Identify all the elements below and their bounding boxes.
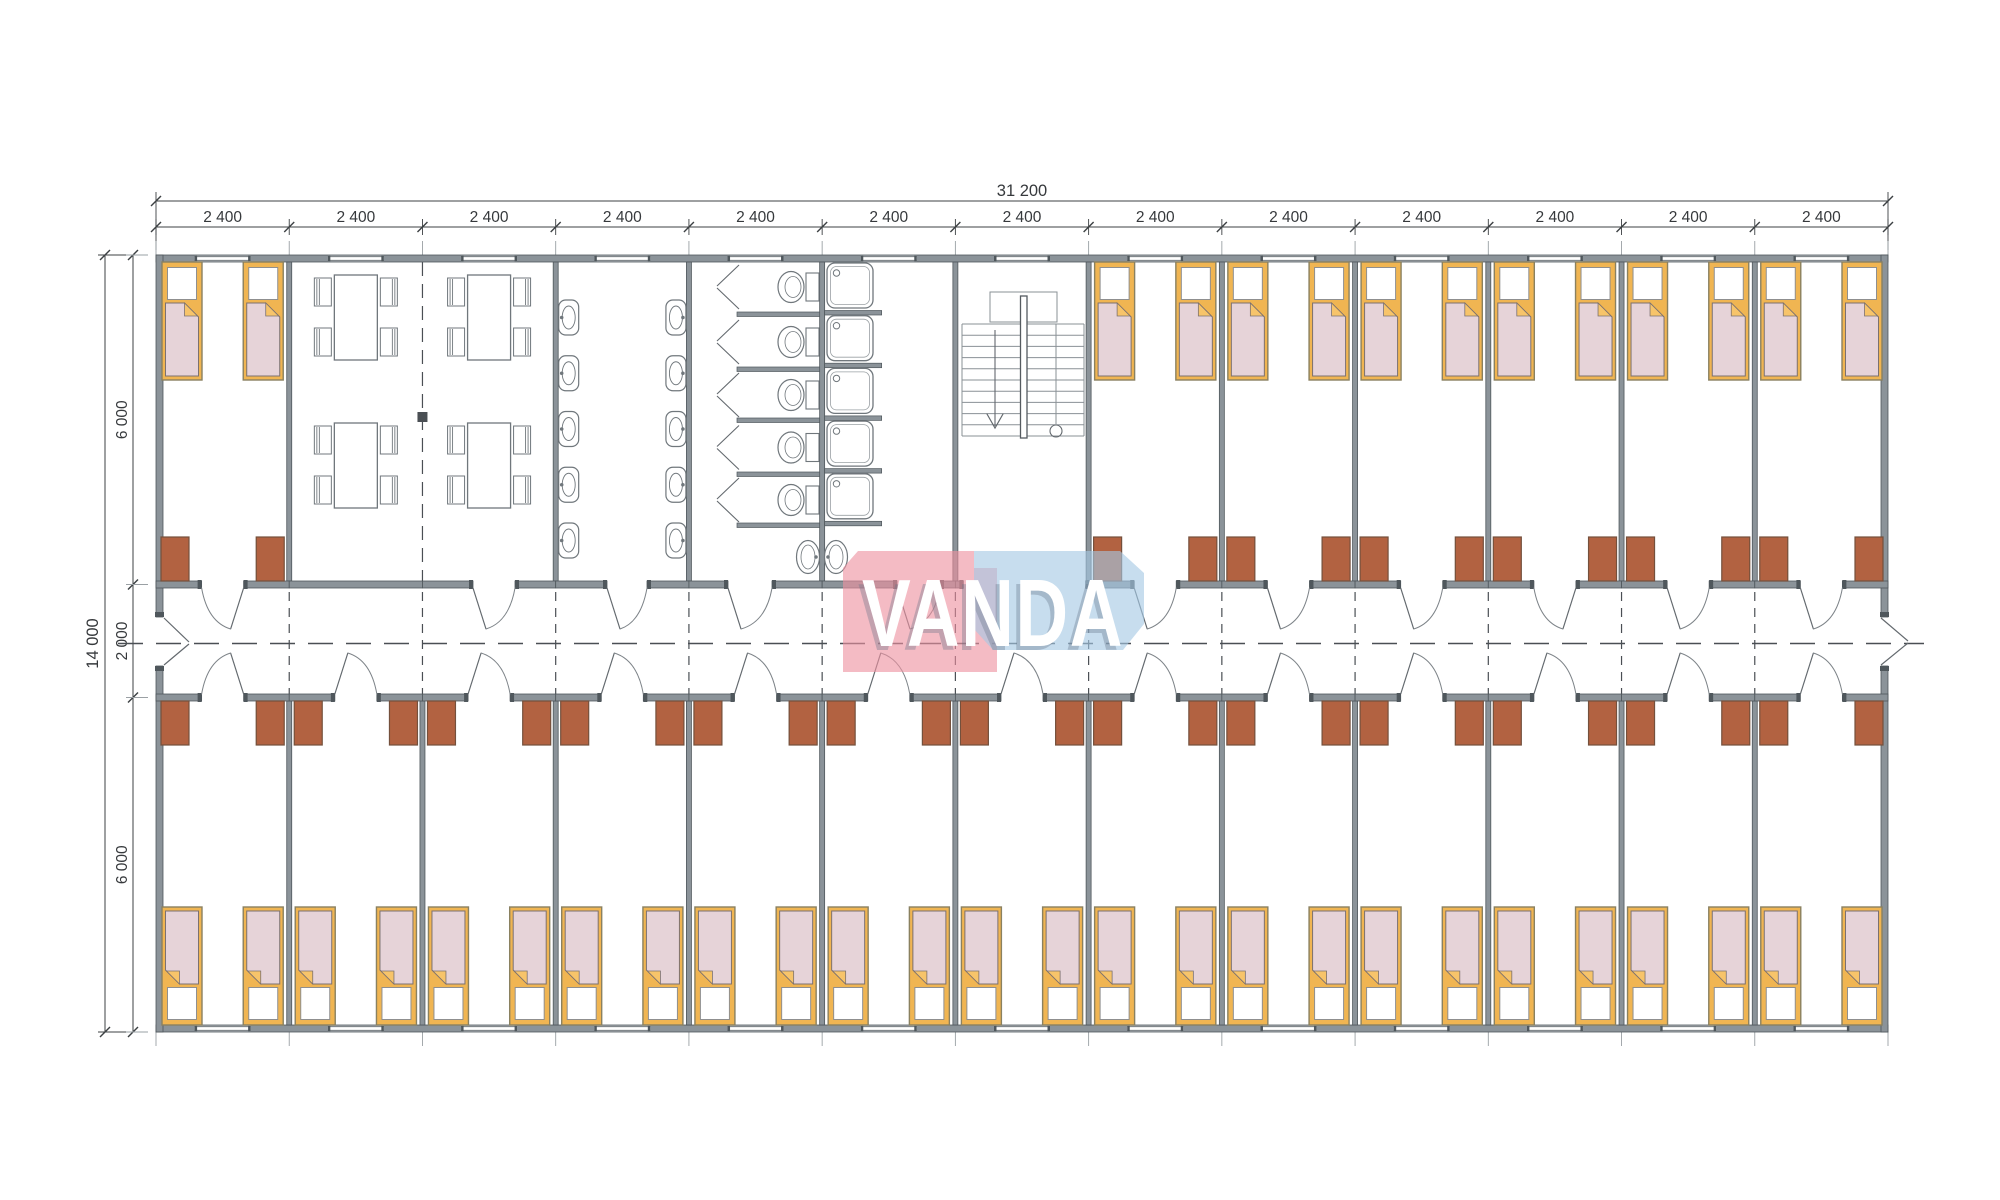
partition-wall-bottom (1353, 701, 1358, 1025)
corridor-wall-lower (510, 694, 556, 701)
window-jamb (1527, 256, 1530, 261)
window-jamb (1660, 1026, 1663, 1031)
partition-wall-top (1619, 262, 1624, 581)
wall-jamb (1263, 580, 1267, 589)
door (1401, 588, 1443, 629)
room-bedroom-bottom-12 (1627, 653, 1750, 1025)
wardrobe (1227, 701, 1255, 745)
corridor-wall-lower (1755, 694, 1801, 701)
room-bedroom-top-10 (1360, 262, 1483, 629)
door-leaf (735, 653, 748, 694)
stall-door-leaf (717, 373, 739, 394)
window-jamb (1394, 1026, 1397, 1031)
dim-label-module-8: 2 400 (1136, 209, 1175, 226)
dining-chair (514, 328, 531, 356)
door (1800, 653, 1842, 694)
corridor-wall-lower (244, 694, 290, 701)
door-leaf (1534, 653, 1547, 694)
wardrobe (1360, 701, 1388, 745)
toilet-tank (806, 434, 819, 462)
room-bedroom-top-11 (1493, 262, 1616, 629)
room-bedroom-top-9 (1227, 262, 1350, 629)
window-jamb (195, 1026, 198, 1031)
partition-wall-top (953, 262, 958, 581)
washbasin-tap (681, 371, 685, 375)
dining-chair (380, 328, 397, 356)
door-swing-arc (614, 653, 643, 694)
door (728, 588, 772, 629)
door-swing-arc (348, 653, 377, 694)
bed-pillow (1315, 268, 1344, 300)
toilet-bowl (778, 485, 804, 516)
window-jamb (1314, 256, 1317, 261)
window-jamb (861, 256, 864, 261)
corridor-wall-lower (1355, 694, 1401, 701)
door (1800, 588, 1842, 629)
wall-jamb (469, 580, 473, 589)
wall-jamb (331, 693, 335, 702)
shower-tray (827, 316, 873, 361)
partition-wall-bottom (1086, 701, 1091, 1025)
corridor-wall-upper (1842, 581, 1888, 588)
bed (1709, 907, 1749, 1025)
bed-pillow (1500, 988, 1529, 1020)
bed (1842, 907, 1882, 1025)
corridor-wall-lower (910, 694, 956, 701)
corridor-wall-lower (955, 694, 1001, 701)
bed (1761, 907, 1801, 1025)
door (735, 653, 777, 694)
washbasin (666, 467, 686, 502)
corridor-wall-lower (1222, 694, 1268, 701)
door-swing-arc (1547, 653, 1576, 694)
wall-jamb (1397, 693, 1401, 702)
window-jamb (1847, 256, 1850, 261)
floor-plan-drawing: 31 2002 4002 4002 4002 4002 4002 4002 40… (0, 0, 2000, 1200)
bed-pillow (301, 988, 330, 1020)
bed (428, 907, 468, 1025)
shower-partition (825, 469, 882, 474)
door-swing-arc (202, 653, 231, 694)
corridor-wall-upper (289, 581, 422, 588)
dim-label-module-5: 2 400 (736, 209, 775, 226)
door-swing-arc (1813, 588, 1842, 629)
corridor-wall-lower (1622, 694, 1668, 701)
partition-wall-top (1752, 262, 1757, 581)
corridor-wall-lower (643, 694, 689, 701)
bed (376, 907, 416, 1025)
toilet-stall-partition (737, 472, 820, 477)
wardrobe (1722, 701, 1750, 745)
wardrobe (523, 701, 551, 745)
bed (1761, 262, 1801, 380)
door-swing-arc (1414, 588, 1443, 629)
bed-pillow (1100, 988, 1129, 1020)
corridor-wall-lower (422, 694, 468, 701)
window-jamb (1127, 1026, 1130, 1031)
room-stairwell (962, 292, 1084, 438)
bed-pillow (1448, 268, 1477, 300)
partition-wall-bottom (553, 701, 558, 1025)
corridor-wall-lower (1176, 694, 1222, 701)
bed-pillow (168, 988, 197, 1020)
bed (295, 907, 335, 1025)
wardrobe (294, 701, 322, 745)
bed (1095, 262, 1135, 380)
dim-label-module-3: 2 400 (470, 209, 509, 226)
door-leaf (468, 653, 481, 694)
bed (1361, 262, 1401, 380)
rooms-bottom-row (161, 653, 1883, 1025)
wall-jamb (1880, 612, 1889, 617)
bed-pillow (1714, 988, 1743, 1020)
window-jamb (1527, 1026, 1530, 1031)
wall-jamb (244, 580, 248, 589)
bed-pillow (1367, 988, 1396, 1020)
toilet (778, 485, 819, 516)
wall-jamb (377, 693, 381, 702)
shower-partition (825, 311, 882, 316)
wardrobe (1589, 701, 1617, 745)
wardrobe (256, 537, 284, 581)
toilet (778, 380, 819, 411)
washbasin (666, 412, 686, 447)
wall-jamb (1176, 580, 1180, 589)
door-leaf (728, 588, 741, 629)
room-bedroom-bottom-11 (1493, 653, 1616, 1025)
window-jamb (1314, 1026, 1317, 1031)
wardrobe (789, 701, 817, 745)
dim-label-total-width: 31 200 (997, 182, 1047, 200)
door-leaf (607, 588, 620, 629)
partition-wall-top (1353, 262, 1358, 581)
window-jamb (728, 1026, 731, 1031)
shower-tray (827, 368, 873, 413)
bed-pillow (168, 268, 197, 300)
wall-jamb (1043, 693, 1047, 702)
partition-wall-bottom (1219, 701, 1224, 1025)
corridor-wall-lower (377, 694, 423, 701)
window-jamb (1394, 256, 1397, 261)
door-leaf (1134, 653, 1147, 694)
dim-label-module-9: 2 400 (1269, 209, 1308, 226)
window-jamb (1048, 1026, 1051, 1031)
bed (562, 907, 602, 1025)
wardrobe (1760, 701, 1788, 745)
entrance-door-leaf-west (164, 618, 189, 642)
window-jamb (1127, 256, 1130, 261)
shower-tray (827, 263, 873, 308)
corridor-wall-upper (1488, 581, 1534, 588)
room-bedroom-bottom-1 (161, 653, 284, 1025)
dim-label-module-1: 2 400 (203, 209, 242, 226)
dining-table (468, 423, 511, 508)
wardrobe (1227, 537, 1255, 581)
partition-wall-top (553, 262, 558, 581)
corridor-wall-upper (1576, 581, 1622, 588)
washbasin-tap (560, 371, 564, 375)
window-jamb (994, 1026, 997, 1031)
bed (243, 262, 283, 380)
window-jamb (515, 1026, 518, 1031)
dim-label-height-segment-1: 6 000 (114, 400, 131, 439)
washbasin-tap (681, 483, 685, 487)
bed-pillow (434, 988, 463, 1020)
window-jamb (381, 1026, 384, 1031)
wardrobe (161, 701, 189, 745)
bed-pillow (1315, 988, 1344, 1020)
bed (1709, 262, 1749, 380)
partition-wall-bottom (686, 701, 691, 1025)
dining-chair (448, 278, 465, 306)
toilet (778, 432, 819, 463)
toilet (778, 272, 819, 303)
logo-text: VANDA (862, 560, 1124, 667)
corridor-wall-lower (1488, 694, 1534, 701)
window-jamb (461, 1026, 464, 1031)
door (1667, 653, 1709, 694)
corridor-wall-lower (822, 694, 868, 701)
window-jamb (648, 1026, 651, 1031)
stall-door-leaf (717, 265, 739, 286)
bed-pillow (834, 988, 863, 1020)
partition-wall-bottom (820, 701, 825, 1025)
entrance-door-leaf-east (1881, 618, 1908, 641)
bed (1309, 907, 1349, 1025)
window-jamb (1580, 1026, 1583, 1031)
bed (1628, 262, 1668, 380)
bed-pillow (382, 988, 411, 1020)
washbasin-tap (681, 427, 685, 431)
dim-label-module-13: 2 400 (1802, 209, 1841, 226)
dim-label-module-2: 2 400 (336, 209, 375, 226)
toilet-bowl (778, 380, 804, 411)
stall-door-leaf (717, 396, 739, 417)
partition-wall-top (1086, 262, 1091, 581)
wardrobe (1855, 537, 1883, 581)
wall-jamb (603, 580, 607, 589)
toilet-tank (806, 486, 819, 514)
wardrobe (1094, 701, 1122, 745)
door-swing-arc (1147, 588, 1176, 629)
corridor-wall-lower (1709, 694, 1755, 701)
wardrobe (1455, 701, 1483, 745)
dim-label-module-6: 2 400 (869, 209, 908, 226)
bed (828, 907, 868, 1025)
window-jamb (1660, 256, 1663, 261)
wall-jamb (1530, 693, 1534, 702)
door-leaf (335, 653, 348, 694)
dim-label-module-11: 2 400 (1536, 209, 1575, 226)
corridor-wall-upper (1443, 581, 1489, 588)
wall-jamb (1663, 693, 1667, 702)
wall-jamb (910, 693, 914, 702)
window-jamb (515, 256, 518, 261)
door-swing-arc (620, 588, 647, 629)
dining-chair (448, 476, 465, 504)
room-bedroom-bottom-7 (960, 653, 1083, 1025)
window-jamb (328, 256, 331, 261)
corridor-wall-lower (289, 694, 335, 701)
corridor-wall-upper (647, 581, 689, 588)
dim-label-height-segment-3: 6 000 (114, 845, 131, 884)
wall-jamb (515, 580, 519, 589)
door (1534, 588, 1576, 629)
window-jamb (1447, 1026, 1450, 1031)
wardrobe (1322, 537, 1350, 581)
shower-partition (825, 521, 882, 526)
window-jamb (328, 1026, 331, 1031)
corridor-wall-lower (556, 694, 602, 701)
window-jamb (594, 1026, 597, 1031)
room-toilets (717, 265, 820, 629)
wall-jamb (1796, 580, 1800, 589)
corridor-wall-upper (1222, 581, 1268, 588)
corridor-wall-upper (1622, 581, 1668, 588)
shower-tray (827, 474, 873, 519)
bed (162, 907, 202, 1025)
door-leaf (231, 653, 244, 694)
washbasin-tap (681, 539, 685, 543)
bed (1361, 907, 1401, 1025)
wardrobe (1493, 537, 1521, 581)
window-jamb (1181, 1026, 1184, 1031)
wall-jamb (1842, 693, 1846, 702)
bed-pillow (1766, 988, 1795, 1020)
wardrobe (922, 701, 950, 745)
wall-jamb (643, 693, 647, 702)
door (335, 653, 377, 694)
bed-pillow (1181, 268, 1210, 300)
door-swing-arc (1813, 653, 1842, 694)
wardrobe (1627, 701, 1655, 745)
washbasin (666, 356, 686, 391)
door-leaf (1401, 588, 1414, 629)
door-swing-arc (1280, 653, 1309, 694)
dining-chair (514, 476, 531, 504)
dining-chair (314, 476, 331, 504)
toilet-stall-partition (737, 367, 820, 372)
wardrobe (1322, 701, 1350, 745)
door (1267, 588, 1309, 629)
wall-jamb (1576, 693, 1580, 702)
door-leaf (1800, 588, 1813, 629)
wall-jamb (198, 693, 202, 702)
door-leaf (601, 653, 614, 694)
window-jamb (1260, 1026, 1263, 1031)
toilet-bowl (778, 327, 804, 358)
window-jamb (648, 256, 651, 261)
door-swing-arc (1147, 653, 1176, 694)
wardrobe (427, 701, 455, 745)
wall-jamb (1397, 580, 1401, 589)
window-jamb (461, 256, 464, 261)
wall-jamb (510, 693, 514, 702)
wardrobe (1627, 537, 1655, 581)
washbasin-tap (681, 316, 685, 320)
bed (1176, 907, 1216, 1025)
room-washroom (559, 300, 686, 629)
toilet-tank (806, 328, 819, 356)
bed-pillow (967, 988, 996, 1020)
wall-jamb (724, 580, 728, 589)
door-swing-arc (748, 653, 777, 694)
corridor-wall-lower (1842, 694, 1888, 701)
toilet-stall-partition (737, 312, 820, 317)
room-bedroom-bottom-3 (427, 653, 550, 1025)
washbasin (559, 300, 579, 335)
door-leaf (1267, 653, 1280, 694)
shower-tray (827, 421, 873, 466)
wall-jamb (1842, 580, 1846, 589)
partition-wall-top (1486, 262, 1491, 581)
bed (1442, 907, 1482, 1025)
wardrobe (694, 701, 722, 745)
bed (1176, 262, 1216, 380)
wall-jamb (1263, 693, 1267, 702)
door-swing-arc (1680, 653, 1709, 694)
bed-pillow (1848, 988, 1877, 1020)
corridor-wall-upper (244, 581, 290, 588)
door-swing-arc (486, 588, 515, 629)
washbasin (559, 356, 579, 391)
wardrobe (1360, 537, 1388, 581)
room-bedroom-bottom-13 (1760, 653, 1883, 1025)
corridor-wall-upper (1355, 581, 1401, 588)
entrance-door-leaf-east (1881, 643, 1908, 665)
washbasin (666, 523, 686, 558)
floor-plan-canvas: 31 2002 4002 4002 4002 4002 4002 4002 40… (0, 0, 2000, 1200)
window-jamb (914, 256, 917, 261)
bed-pillow (1714, 268, 1743, 300)
partition-wall-bottom (1752, 701, 1757, 1025)
corridor-wall-lower (1309, 694, 1355, 701)
wardrobe (1189, 701, 1217, 745)
door-swing-arc (1414, 653, 1443, 694)
window-jamb (781, 256, 784, 261)
room-bedroom-bottom-5 (694, 653, 817, 1025)
corridor-wall-upper (556, 581, 607, 588)
bed (643, 907, 683, 1025)
wardrobe (256, 701, 284, 745)
window-jamb (994, 256, 997, 261)
wardrobe (161, 537, 189, 581)
toilet-stall-partition (737, 523, 820, 528)
bed-pillow (1633, 988, 1662, 1020)
corridor-wall-upper (1709, 581, 1755, 588)
bed-pillow (1581, 268, 1610, 300)
bed (1442, 262, 1482, 380)
room-bedroom-bottom-2 (294, 653, 417, 1025)
bed (1842, 262, 1882, 380)
window-jamb (1793, 256, 1796, 261)
dining-table (334, 423, 377, 508)
dining-chair (380, 278, 397, 306)
dining-table (334, 275, 377, 360)
door-swing-arc (1534, 588, 1563, 629)
washbasin-tap (560, 539, 564, 543)
bed-pillow (700, 988, 729, 1020)
wall-jamb (1530, 580, 1534, 589)
bed-pillow (1581, 988, 1610, 1020)
wardrobe (1189, 537, 1217, 581)
window-jamb (861, 1026, 864, 1031)
washbasin-tap (814, 555, 818, 559)
corridor-wall-upper (422, 581, 473, 588)
wardrobe (1493, 701, 1521, 745)
dining-chair (380, 426, 397, 454)
toilet-tank (806, 381, 819, 409)
